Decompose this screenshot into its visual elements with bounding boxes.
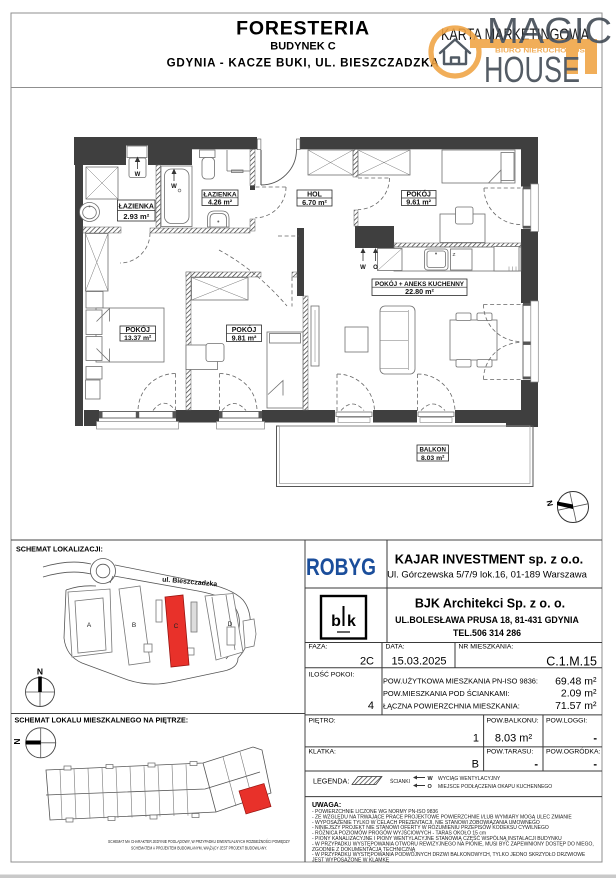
svg-text:POKÓJ: POKÓJ — [125, 325, 150, 334]
svg-text:ILOŚĆ POKOI:: ILOŚĆ POKOI: — [309, 670, 355, 679]
svg-text:B: B — [472, 759, 479, 771]
svg-text:Z: Z — [453, 252, 456, 258]
svg-text:W: W — [360, 265, 366, 271]
svg-text:13.37 m²: 13.37 m² — [124, 335, 152, 342]
svg-text:BUDYNEK C: BUDYNEK C — [270, 41, 335, 53]
svg-text:POW.UŻYTKOWA MIESZKANIA PN-ISO: POW.UŻYTKOWA MIESZKANIA PN-ISO 9836: — [383, 677, 538, 686]
svg-text:BALKON: BALKON — [419, 446, 446, 453]
svg-text:FAZA:: FAZA: — [309, 644, 328, 651]
svg-text:ŁĄCZNA POWIERZCHNIA MIESZKANIA: ŁĄCZNA POWIERZCHNIA MIESZKANIA: — [383, 702, 520, 711]
svg-text:ROBYG: ROBYG — [306, 554, 376, 581]
svg-text:6.70 m²: 6.70 m² — [302, 198, 327, 207]
svg-text:POW.MIESZKANIA POD ŚCIANKAMI:: POW.MIESZKANIA POD ŚCIANKAMI: — [383, 689, 509, 698]
svg-text:8.03 m²: 8.03 m² — [495, 733, 533, 745]
svg-text:MIEJSCE PODŁĄCZENIA OKAPU KUCH: MIEJSCE PODŁĄCZENIA OKAPU KUCHENNEGO — [438, 784, 552, 790]
svg-text:WYCIĄG WENTYLACYJNY: WYCIĄG WENTYLACYJNY — [438, 776, 501, 782]
svg-text:ŁAZIENKA: ŁAZIENKA — [203, 191, 237, 198]
svg-text:9.81 m²: 9.81 m² — [232, 333, 257, 342]
svg-text:22.80 m²: 22.80 m² — [405, 287, 434, 296]
svg-text:69.48 m²: 69.48 m² — [555, 676, 597, 688]
svg-text:9.61 m²: 9.61 m² — [406, 197, 431, 206]
svg-text:k: k — [347, 613, 356, 630]
svg-text:ŁAZIENKA: ŁAZIENKA — [119, 203, 154, 210]
svg-text:TEL.506 314 286: TEL.506 314 286 — [453, 628, 521, 638]
svg-text:NR MIESZKANIA:: NR MIESZKANIA: — [459, 644, 514, 651]
svg-text:KAJAR INVESTMENT sp. z o.o.: KAJAR INVESTMENT sp. z o.o. — [395, 552, 583, 567]
svg-text:4: 4 — [368, 700, 374, 712]
svg-text:W: W — [171, 184, 177, 190]
svg-text:C.1.M.15: C.1.M.15 — [546, 655, 597, 669]
svg-text:N: N — [545, 500, 555, 508]
svg-text:-: - — [593, 759, 597, 771]
svg-text:A: A — [87, 622, 92, 629]
svg-text:PIĘTRO:: PIĘTRO: — [309, 718, 336, 725]
svg-text:O: O — [373, 265, 378, 271]
svg-text:B: B — [132, 622, 136, 629]
svg-text:4.26 m²: 4.26 m² — [208, 199, 233, 206]
svg-text:UWAGA:: UWAGA: — [312, 802, 341, 809]
svg-text:O: O — [428, 784, 433, 790]
svg-text:C: C — [174, 623, 179, 630]
svg-text:JEST WYPOSAŻONE W KLAMKĘ: JEST WYPOSAŻONE W KLAMKĘ — [312, 857, 390, 864]
svg-text:BJK Architekci Sp. z o. o.: BJK Architekci Sp. z o. o. — [415, 597, 565, 611]
svg-text:W: W — [135, 172, 141, 178]
svg-text:POW.LOGGI:: POW.LOGGI: — [546, 718, 587, 725]
svg-text:POW.BALKONU:: POW.BALKONU: — [487, 718, 539, 725]
svg-text:-: - — [534, 759, 538, 771]
svg-text:LEGENDA:: LEGENDA: — [313, 777, 349, 786]
svg-text:SCHEMAT LOKALU MIESZKALNEGO NA: SCHEMAT LOKALU MIESZKALNEGO NA PIĘTRZE: — [15, 716, 189, 725]
svg-text:ŚCIANKI: ŚCIANKI — [390, 777, 410, 785]
svg-text:2.93 m²: 2.93 m² — [123, 212, 149, 221]
svg-text:GDYNIA - KACZE BUKI, UL. BIESZ: GDYNIA - KACZE BUKI, UL. BIESZCZADZKA — [167, 57, 440, 70]
svg-text:15.03.2025: 15.03.2025 — [392, 656, 447, 668]
svg-text:MAGIC: MAGIC — [487, 10, 612, 51]
svg-text:SCHEMATEM A PROJEKTEM BUDOWLAN: SCHEMATEM A PROJEKTEM BUDOWLANYM, WIĄŻĄC… — [131, 845, 267, 851]
svg-text:SCHEMAT MA CHARAKTER JEDYNIE P: SCHEMAT MA CHARAKTER JEDYNIE POGLĄDOWY, … — [108, 837, 290, 844]
svg-text:b: b — [331, 613, 341, 630]
svg-text:UL.BOLESŁAWA PRUSA 18, 81-431: UL.BOLESŁAWA PRUSA 18, 81-431 GDYNIA — [395, 615, 579, 625]
svg-text:SCHEMAT LOKALIZACJI:: SCHEMAT LOKALIZACJI: — [16, 545, 103, 554]
svg-text:FORESTERIA: FORESTERIA — [236, 18, 370, 40]
svg-text:D: D — [228, 621, 233, 628]
svg-text:N: N — [12, 738, 22, 744]
svg-text:Ul. Górczewska 5/7/9 lok.16, 0: Ul. Górczewska 5/7/9 lok.16, 01-189 Wars… — [387, 570, 587, 581]
svg-text:71.57 m²: 71.57 m² — [555, 700, 597, 712]
svg-text:8.03 m²: 8.03 m² — [421, 455, 445, 462]
svg-text:POW.OGRÓDKA:: POW.OGRÓDKA: — [546, 747, 600, 756]
svg-text:2.09 m²: 2.09 m² — [561, 688, 597, 700]
svg-text:1: 1 — [473, 733, 479, 745]
svg-text:-: - — [593, 733, 597, 745]
svg-text:2C: 2C — [360, 656, 374, 668]
svg-text:N: N — [37, 667, 43, 677]
svg-text:W: W — [428, 776, 434, 782]
svg-text:DATA:: DATA: — [386, 644, 405, 651]
svg-text:HOUSE: HOUSE — [484, 49, 580, 90]
svg-text:POW.TARASU:: POW.TARASU: — [487, 749, 534, 756]
svg-text:ul. Bieszczadzka: ul. Bieszczadzka — [162, 577, 218, 589]
svg-text:KLATKA:: KLATKA: — [309, 749, 337, 756]
